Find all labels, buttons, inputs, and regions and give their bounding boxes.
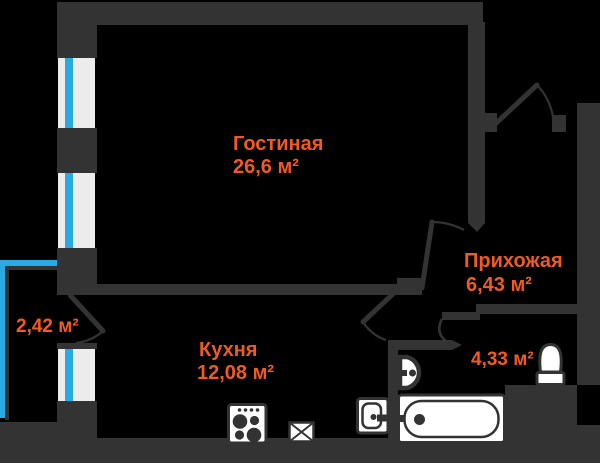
door-leaf [363, 292, 395, 322]
bathtub-tap [392, 415, 405, 422]
door-leaf [422, 222, 432, 288]
stove-knob [256, 408, 260, 412]
bathroom-lower-wall [388, 340, 452, 350]
wall-tip [468, 223, 485, 232]
washbasin-icon [395, 357, 419, 388]
wall-tip [452, 340, 462, 350]
washbasin-drain [409, 370, 416, 377]
entrance-door [492, 85, 553, 127]
door-swing-arc [432, 222, 464, 230]
living-room-name: Гостиная [233, 133, 323, 155]
washing-machine-knob [371, 414, 377, 420]
living-hallway-wall [468, 22, 485, 223]
kitchen-sink-icon [290, 423, 314, 442]
floor-plan-drawing: Гостиная 26,6 м² Прихожая 6,43 м² Кухня … [0, 0, 600, 463]
balcony-glazing [0, 260, 57, 420]
balcony-inner-line [5, 266, 9, 420]
toilet-bowl [540, 345, 561, 373]
door-swing-arc [363, 322, 386, 340]
stove-icon [229, 405, 267, 444]
living-room-area: 26,6 м² [233, 156, 299, 178]
bathtub-drain [414, 414, 425, 425]
window-glazing-line [65, 349, 73, 401]
stove-knob [250, 408, 254, 412]
bathtub-icon [392, 395, 505, 443]
kitchen-window [58, 349, 95, 401]
door-jamb [397, 278, 422, 295]
kitchen-name: Кухня [199, 339, 257, 361]
top-exterior-wall [57, 2, 483, 25]
entrance-right-jamb [552, 115, 566, 132]
bathroom-door [439, 319, 449, 343]
stove-burner [250, 416, 259, 425]
stove-burner [233, 414, 248, 429]
left-wall-segment [57, 2, 97, 58]
bottom-left-wall-block [0, 422, 97, 463]
left-wall-segment [57, 128, 97, 173]
hallway-area: 6,43 м² [466, 274, 532, 296]
bottom-right-block [543, 425, 600, 463]
living-room-door [422, 222, 464, 288]
window-glazing-line [65, 173, 73, 248]
right-exterior-wall [577, 103, 600, 385]
stove-burner [247, 428, 262, 443]
door-swing-arc [439, 319, 449, 343]
toilet-tank [537, 373, 564, 385]
left-wall-segment [57, 248, 97, 295]
kitchen-area: 12,08 м² [197, 362, 274, 384]
hallway-name: Прихожая [464, 250, 563, 272]
washbasin-tap [395, 370, 407, 376]
door-swing-arc [537, 85, 553, 117]
window-glazing-line [65, 58, 73, 128]
living-room-window [58, 58, 95, 128]
stove-knob [238, 408, 242, 412]
bathroom-area: 4,33 м² [471, 349, 534, 370]
kitchen-door [363, 292, 395, 340]
balcony-area: 2,42 м² [16, 316, 79, 337]
floor-plan: Гостиная 26,6 м² Прихожая 6,43 м² Кухня … [0, 0, 600, 463]
balcony-inner-line [5, 266, 57, 270]
windows [58, 58, 95, 401]
balcony-glazing-left [0, 260, 5, 418]
washing-machine-hookup [377, 415, 391, 422]
stove-knob [244, 408, 248, 412]
door-leaf [492, 85, 537, 127]
balcony-glazing-top [0, 260, 57, 266]
hallway-bathroom-divider [476, 304, 600, 314]
living-room-window [58, 173, 95, 248]
door-swing-arc [76, 331, 103, 343]
living-kitchen-divider-wall [97, 284, 397, 295]
washing-machine-icon [358, 399, 392, 434]
hallway-bathroom-divider [442, 312, 480, 320]
stove-burner [235, 430, 244, 439]
toilet-icon [537, 345, 564, 385]
